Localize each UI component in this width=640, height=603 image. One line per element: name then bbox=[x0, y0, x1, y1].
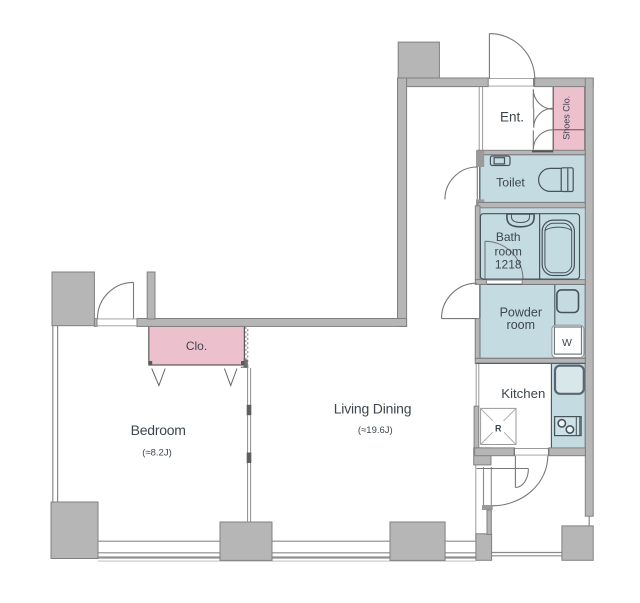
svg-text:room: room bbox=[495, 244, 522, 258]
svg-text:1218: 1218 bbox=[495, 258, 522, 272]
svg-text:(≈19.6J): (≈19.6J) bbox=[358, 425, 393, 436]
svg-text:Kitchen: Kitchen bbox=[501, 386, 545, 401]
svg-text:room: room bbox=[507, 318, 535, 332]
svg-text:Bath: Bath bbox=[496, 230, 521, 244]
svg-text:Bedroom: Bedroom bbox=[131, 422, 186, 438]
svg-text:R: R bbox=[495, 423, 502, 433]
svg-text:Shoes Clo.: Shoes Clo. bbox=[561, 96, 571, 140]
svg-text:Clo.: Clo. bbox=[186, 339, 207, 353]
svg-text:Living Dining: Living Dining bbox=[334, 400, 412, 416]
svg-text:Ent.: Ent. bbox=[500, 109, 524, 124]
svg-text:W: W bbox=[562, 337, 572, 349]
svg-text:Toilet: Toilet bbox=[496, 176, 525, 190]
svg-text:(≈8.2J): (≈8.2J) bbox=[142, 447, 172, 458]
